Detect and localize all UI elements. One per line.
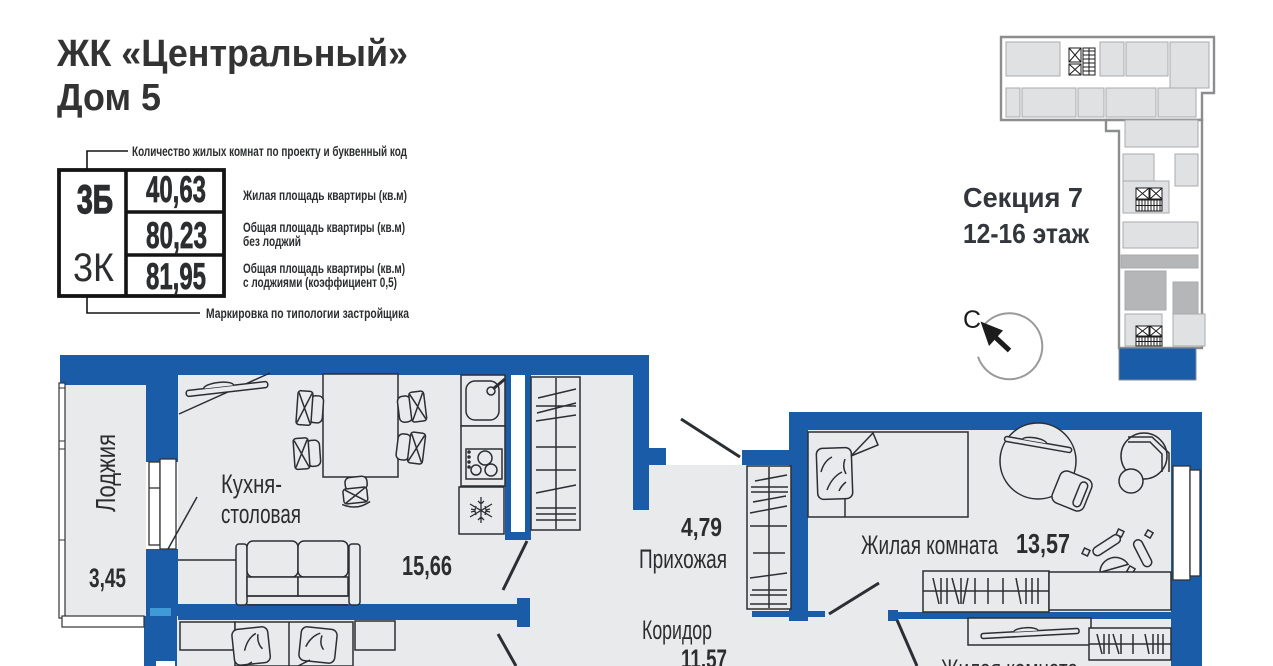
svg-text:81,95: 81,95 bbox=[146, 256, 206, 297]
svg-text:Прихожая: Прихожая bbox=[639, 544, 727, 574]
svg-text:15,66: 15,66 bbox=[402, 550, 452, 581]
svg-text:40,63: 40,63 bbox=[146, 169, 206, 210]
svg-text:3Б: 3Б bbox=[77, 178, 113, 222]
svg-text:Лоджия: Лоджия bbox=[90, 434, 121, 512]
svg-text:3,45: 3,45 bbox=[89, 563, 126, 593]
svg-text:Жилая комната: Жилая комната bbox=[861, 530, 999, 560]
svg-text:с лоджиями (коэффициент 0,5): с лоджиями (коэффициент 0,5) bbox=[243, 274, 397, 290]
svg-text:11,57: 11,57 bbox=[681, 644, 727, 666]
svg-text:Маркировка по типологии застро: Маркировка по типологии застройщика bbox=[206, 305, 409, 321]
svg-text:ЖК «Центральный»: ЖК «Центральный» bbox=[56, 33, 408, 75]
svg-text:Коридор: Коридор bbox=[642, 615, 712, 645]
svg-text:Кухня-: Кухня- bbox=[221, 469, 282, 499]
svg-text:Количество жилых комнат по про: Количество жилых комнат по проекту и бук… bbox=[132, 143, 407, 159]
svg-text:столовая: столовая bbox=[221, 499, 301, 529]
svg-text:4,79: 4,79 bbox=[681, 512, 722, 542]
svg-text:Жилая площадь квартиры (кв.м): Жилая площадь квартиры (кв.м) bbox=[242, 187, 407, 203]
svg-text:Жилая комната: Жилая комната bbox=[941, 654, 1079, 666]
svg-text:3К: 3К bbox=[73, 246, 115, 290]
svg-text:Секция 7: Секция 7 bbox=[963, 182, 1083, 213]
svg-text:80,23: 80,23 bbox=[146, 215, 207, 256]
svg-text:Дом 5: Дом 5 bbox=[57, 77, 161, 119]
svg-text:13,57: 13,57 bbox=[1016, 528, 1070, 559]
svg-text:без лоджий: без лоджий bbox=[243, 233, 301, 249]
svg-text:С: С bbox=[963, 306, 981, 334]
svg-text:12-16 этаж: 12-16 этаж bbox=[963, 218, 1090, 249]
